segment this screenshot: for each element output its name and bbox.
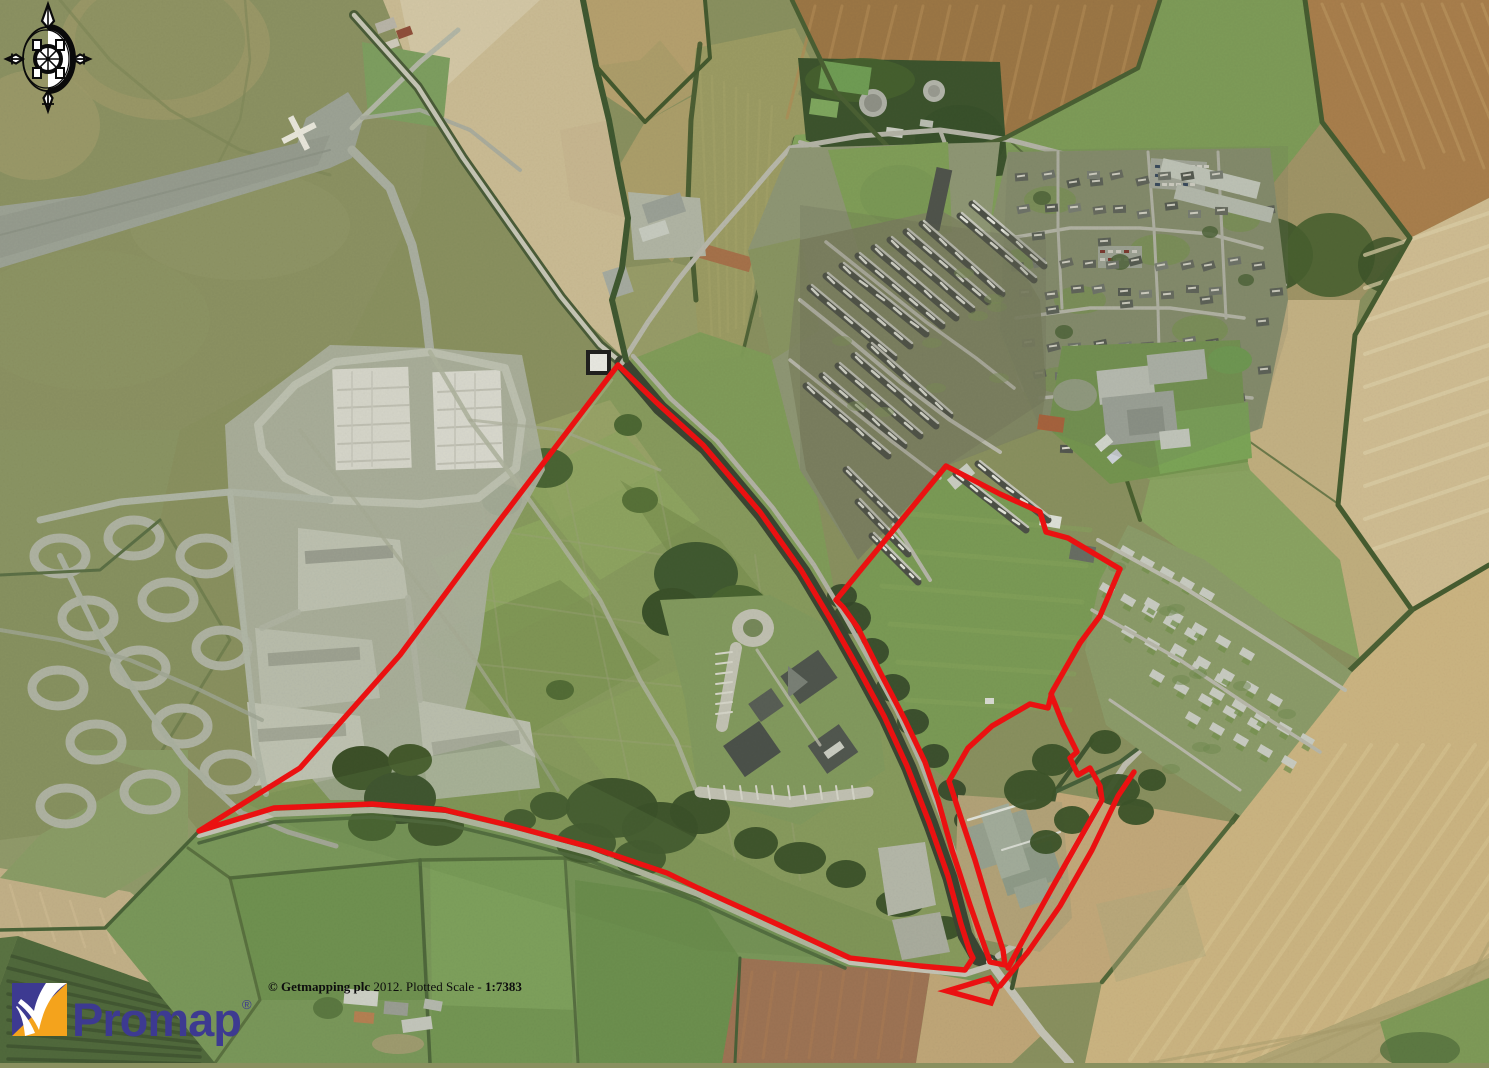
svg-text:Promap: Promap bbox=[72, 993, 241, 1046]
svg-text:© Getmapping plc 2012. Plotted: © Getmapping plc 2012. Plotted Scale - 1… bbox=[268, 979, 522, 994]
svg-text:®: ® bbox=[242, 997, 252, 1012]
